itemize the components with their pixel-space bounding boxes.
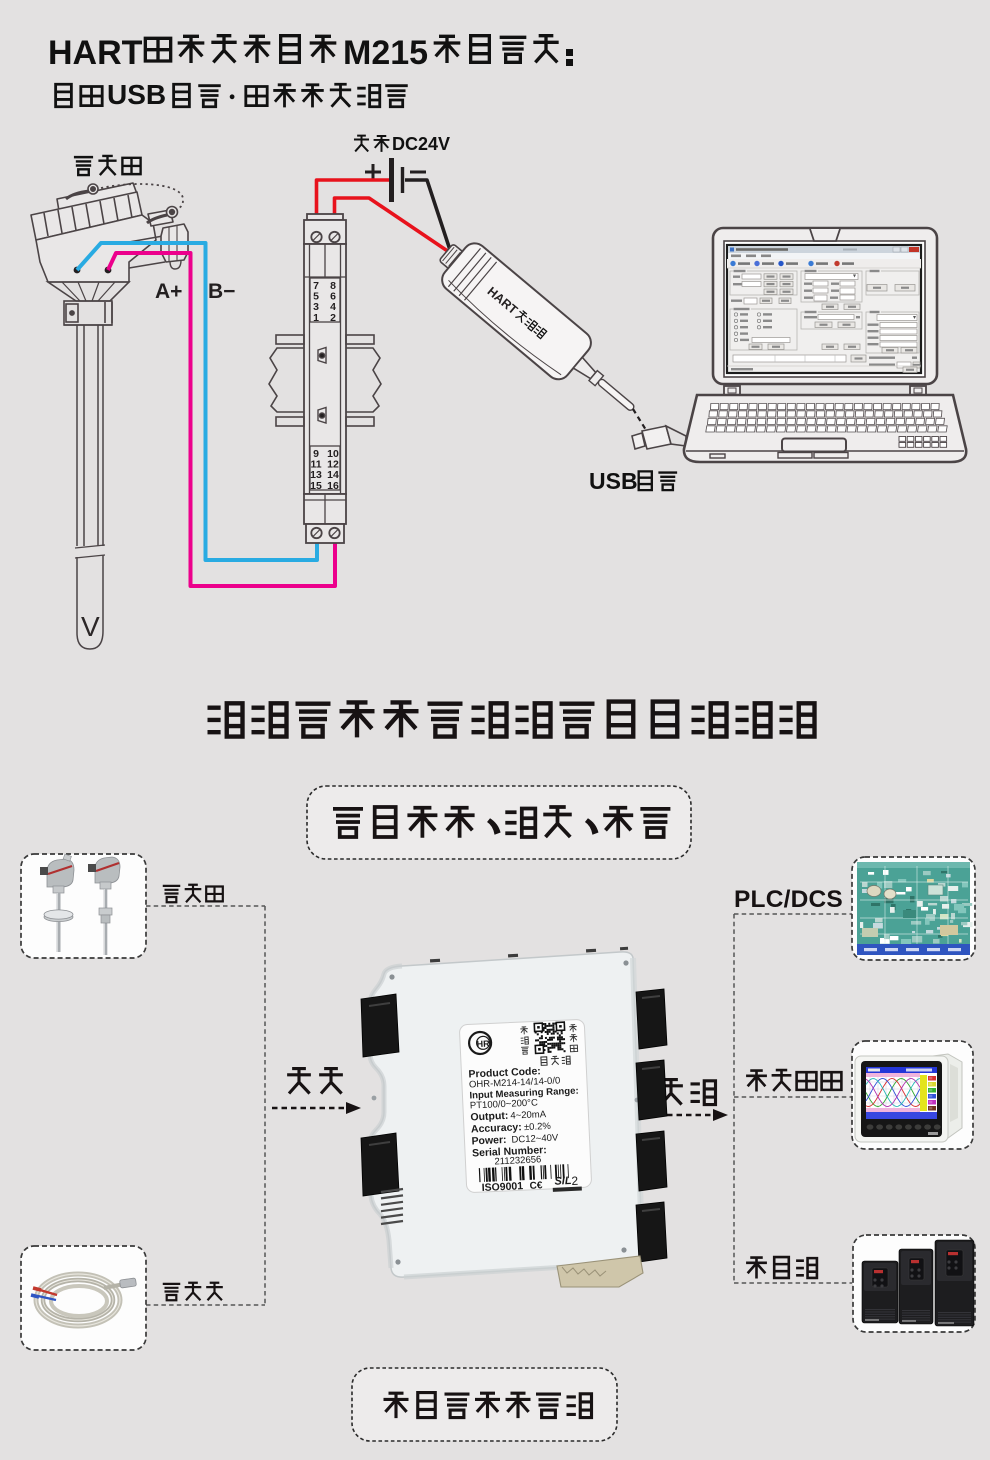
svg-text:16: 16: [327, 480, 339, 492]
svg-text:15: 15: [310, 480, 322, 492]
svg-text:HR: HR: [476, 1039, 490, 1050]
svg-text:USB: USB: [107, 79, 166, 110]
svg-text:211232656: 211232656: [494, 1154, 541, 1167]
svg-text:SIL: SIL: [554, 1175, 572, 1188]
svg-text:1: 1: [313, 312, 319, 324]
svg-text:A+: A+: [155, 280, 182, 303]
svg-text:DC24V: DC24V: [392, 134, 450, 154]
svg-text:2: 2: [330, 312, 336, 324]
svg-text:HART: HART: [48, 34, 143, 72]
svg-text:C€: C€: [529, 1180, 543, 1192]
svg-text:2: 2: [571, 1174, 579, 1188]
svg-text:B−: B−: [208, 280, 235, 303]
svg-text:±0.2%: ±0.2%: [524, 1121, 552, 1133]
svg-text:PLC/DCS: PLC/DCS: [734, 886, 843, 913]
svg-text:4~20mA: 4~20mA: [510, 1109, 547, 1122]
svg-text:ISO9001: ISO9001: [481, 1180, 523, 1194]
svg-text:M215: M215: [343, 34, 428, 72]
svg-text:USB: USB: [589, 468, 638, 494]
svg-text:Accuracy:: Accuracy:: [471, 1121, 522, 1135]
svg-text:V: V: [81, 611, 100, 642]
